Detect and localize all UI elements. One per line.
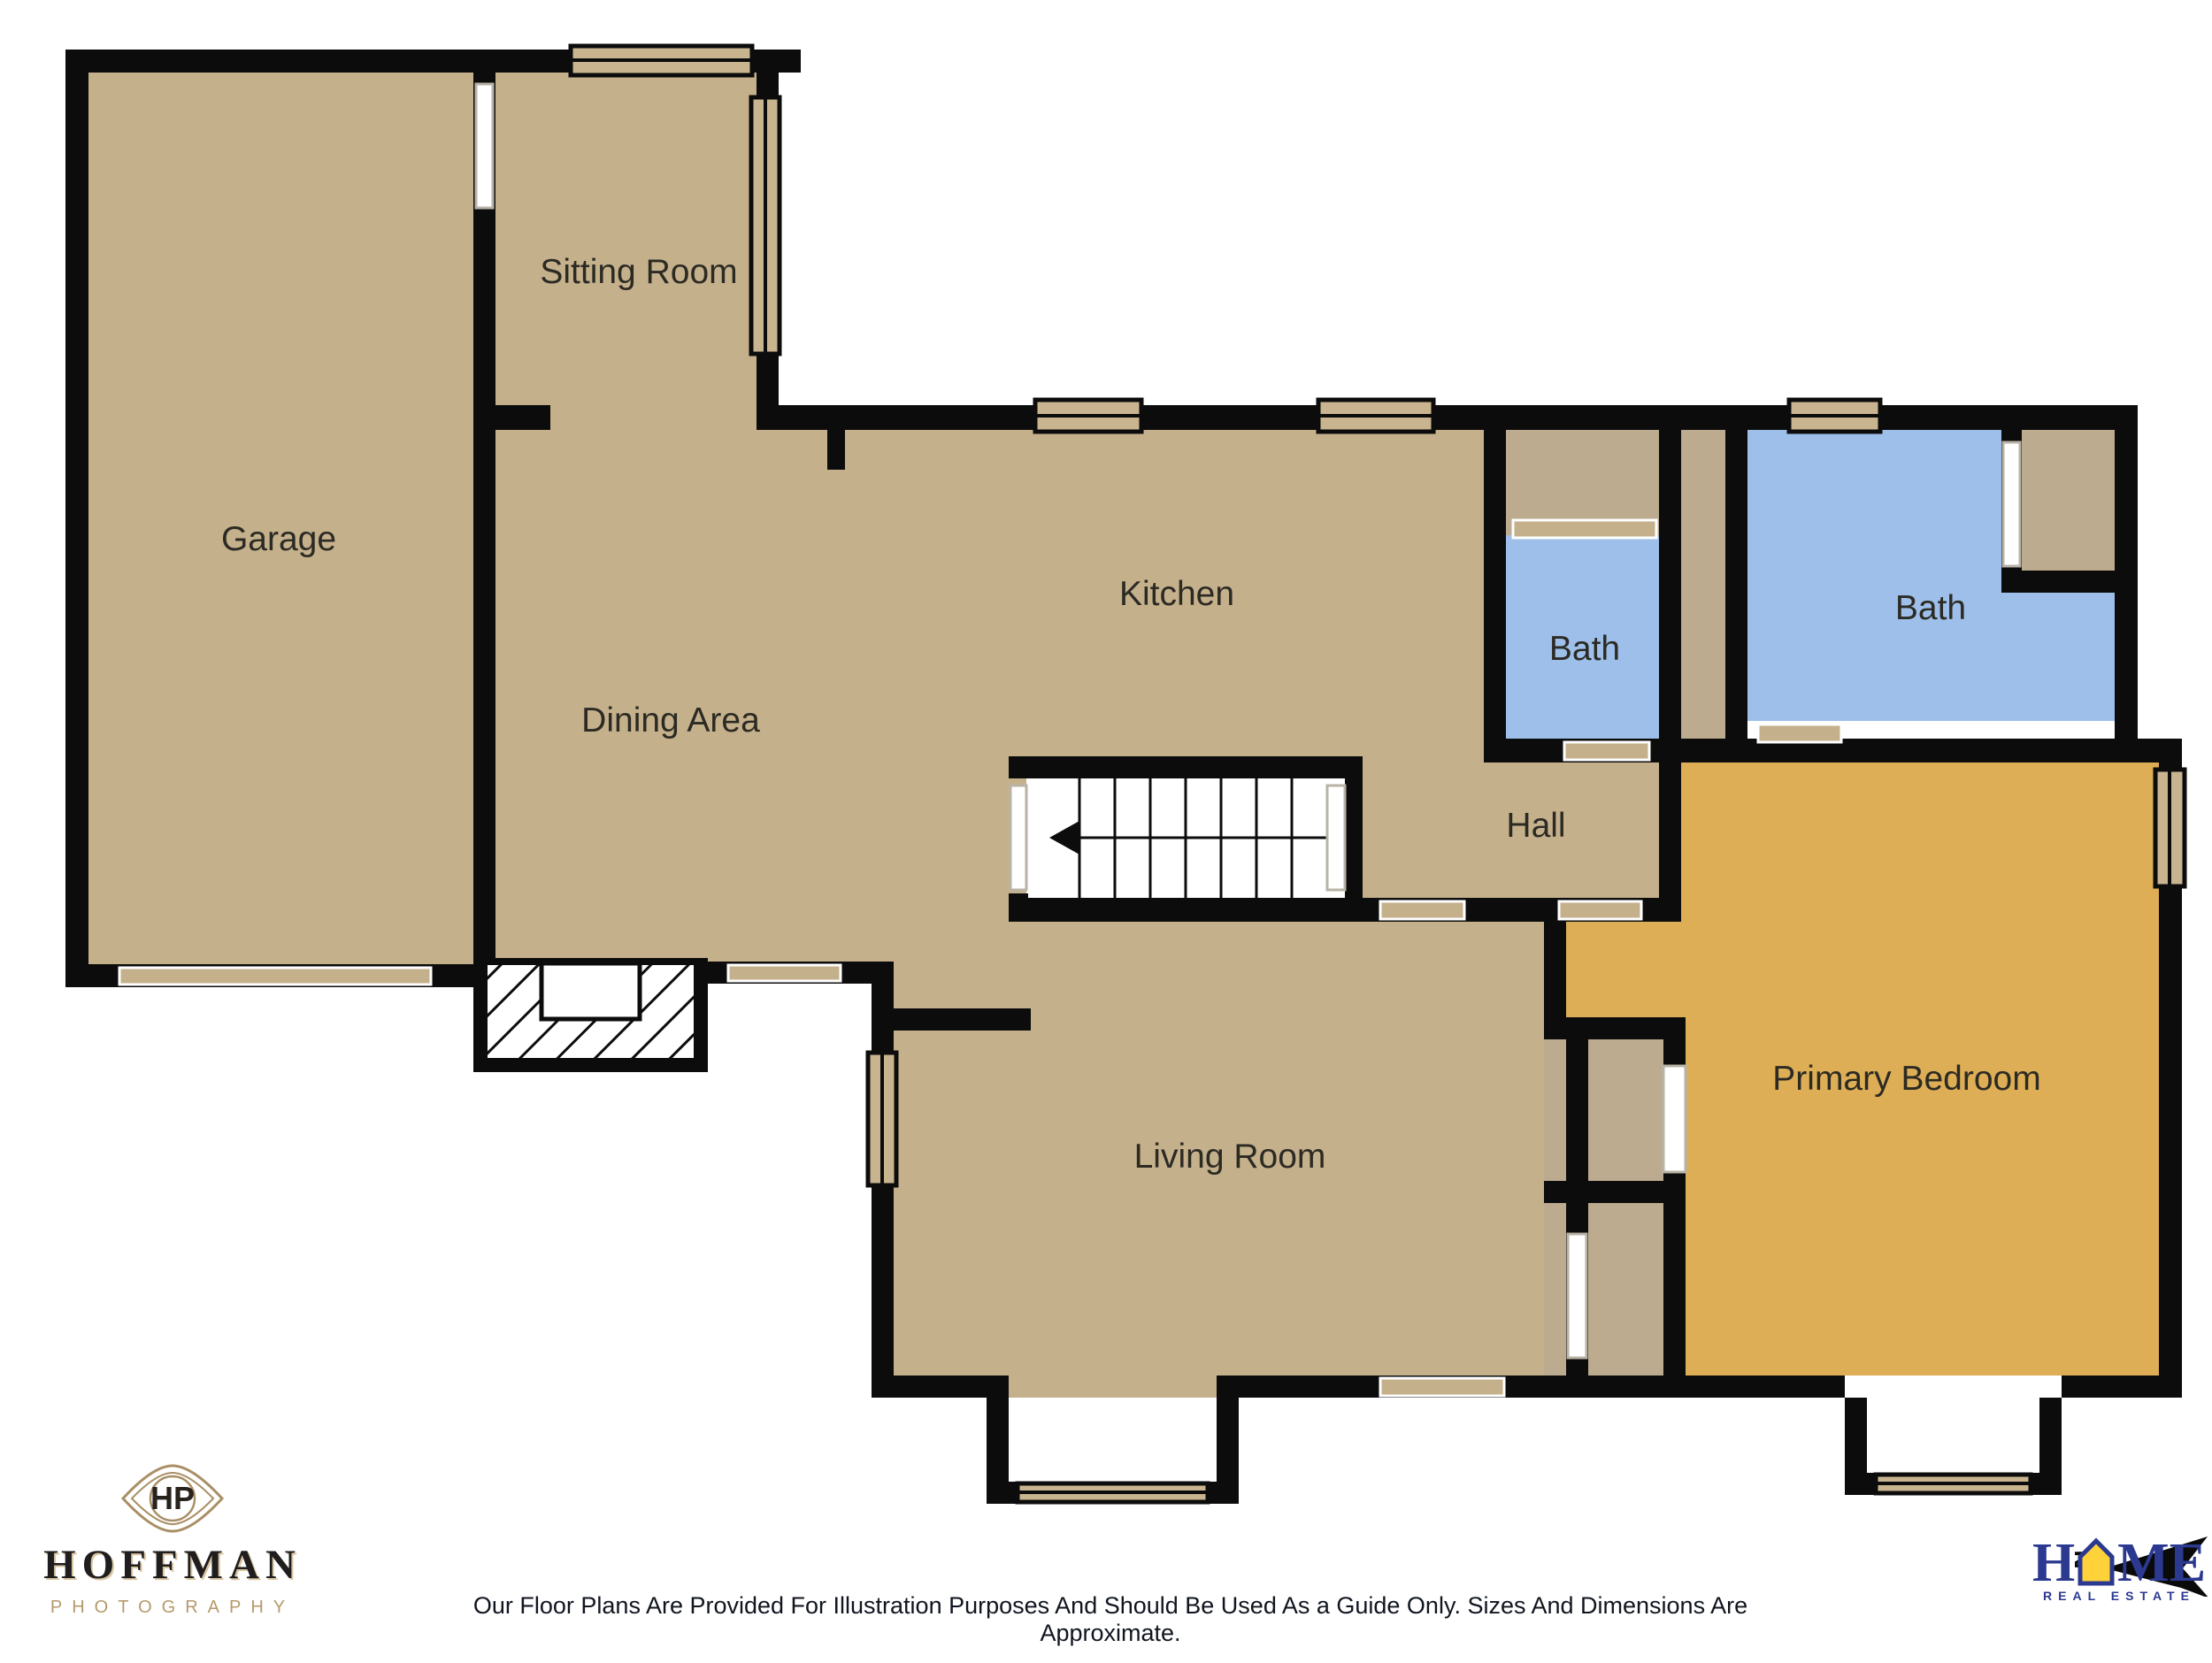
wall-bath-large-left bbox=[1725, 405, 1747, 743]
door-living-patio bbox=[1380, 1378, 1504, 1396]
wall-bath-small-right bbox=[1659, 405, 1681, 763]
fireplace-firebox bbox=[541, 963, 640, 1019]
wall-kitchen-stub bbox=[827, 430, 845, 470]
door-bathsmall-closet bbox=[1513, 520, 1656, 538]
label-sitting-room: Sitting Room bbox=[540, 253, 737, 291]
label-kitchen: Kitchen bbox=[1119, 575, 1234, 613]
hoffman-name: HOFFMAN bbox=[27, 1541, 319, 1589]
floor-plan: Garage Sitting Room Kitchen Dining Area … bbox=[0, 0, 2212, 1659]
hoffman-eye-icon: HP bbox=[119, 1464, 226, 1533]
label-dining-area: Dining Area bbox=[581, 701, 760, 740]
wall-garage-left bbox=[65, 50, 88, 987]
wall-bath-right-outer bbox=[2115, 405, 2138, 763]
floors bbox=[65, 50, 2159, 1398]
disclaimer-text: Our Floor Plans Are Provided For Illustr… bbox=[425, 1592, 1796, 1647]
hoffman-tagline: PHOTOGRAPHY bbox=[27, 1598, 319, 1618]
garage-door-band bbox=[119, 968, 431, 985]
wall-bathcloset-bottom bbox=[2001, 571, 2115, 593]
bath-large-closet-floor bbox=[2022, 430, 2115, 571]
label-primary-bedroom: Primary Bedroom bbox=[1772, 1060, 2040, 1098]
wall-upper-closet-right-b bbox=[1663, 1172, 1686, 1203]
wall-bottom-b bbox=[1217, 1376, 1845, 1398]
primary-bedroom-entry-floor bbox=[1566, 922, 1681, 1017]
label-hall: Hall bbox=[1506, 807, 1565, 845]
wall-upper-closet-right-a bbox=[1663, 1039, 1686, 1066]
door-bedroom-bathlarge bbox=[1758, 724, 1841, 742]
door-hall-living bbox=[1380, 901, 1464, 919]
door-bath-closet bbox=[2003, 442, 2020, 566]
door-stairs-right bbox=[1327, 786, 1345, 890]
door-garage-sitting bbox=[476, 84, 493, 208]
window-dining-bottom bbox=[728, 965, 841, 981]
label-bath-large: Bath bbox=[1895, 589, 1966, 627]
home-letter-h: H bbox=[2032, 1540, 2075, 1587]
home-real-estate-logo: HME REAL ESTATE bbox=[2026, 1537, 2212, 1603]
wall-living-top-stub bbox=[872, 1008, 1031, 1031]
fireplace bbox=[486, 963, 695, 1060]
floor-plan-page: Garage Sitting Room Kitchen Dining Area … bbox=[0, 0, 2212, 1659]
wall-stairs-top bbox=[1009, 756, 1363, 778]
home-house-icon bbox=[2077, 1537, 2116, 1587]
hoffman-monogram: HP bbox=[150, 1480, 195, 1516]
label-living-room: Living Room bbox=[1134, 1138, 1326, 1176]
wall-kitchen-top bbox=[757, 405, 2138, 430]
door-hall-bathsmall bbox=[1564, 742, 1649, 760]
door-upper-closet bbox=[1663, 1066, 1686, 1172]
sitting-room-floor bbox=[473, 50, 779, 430]
home-letter-e: E bbox=[2170, 1540, 2206, 1587]
home-subtitle: REAL ESTATE bbox=[2026, 1589, 2212, 1603]
wall-kitchen-bath-left bbox=[1484, 405, 1506, 763]
label-bath-small: Bath bbox=[1549, 630, 1620, 668]
door-hall-bedroom bbox=[1559, 901, 1641, 919]
hoffman-photography-logo: HP HOFFMAN PHOTOGRAPHY bbox=[27, 1464, 319, 1618]
wall-lower-closet-right bbox=[1663, 1203, 1686, 1376]
home-letter-m: M bbox=[2117, 1540, 2170, 1587]
wall-bottom-a bbox=[872, 1376, 1009, 1398]
door-lower-closet bbox=[1568, 1234, 1586, 1358]
wall-hall-right bbox=[1659, 763, 1681, 922]
wall-closet-top bbox=[1544, 1017, 1686, 1039]
wall-divider-stub bbox=[473, 405, 550, 430]
door-stairs-left bbox=[1010, 786, 1026, 890]
home-word: HME bbox=[2026, 1537, 2212, 1587]
label-garage: Garage bbox=[221, 520, 336, 558]
garage-floor bbox=[65, 50, 495, 987]
wall-stairs-right bbox=[1345, 756, 1363, 922]
staircase bbox=[1044, 778, 1327, 898]
